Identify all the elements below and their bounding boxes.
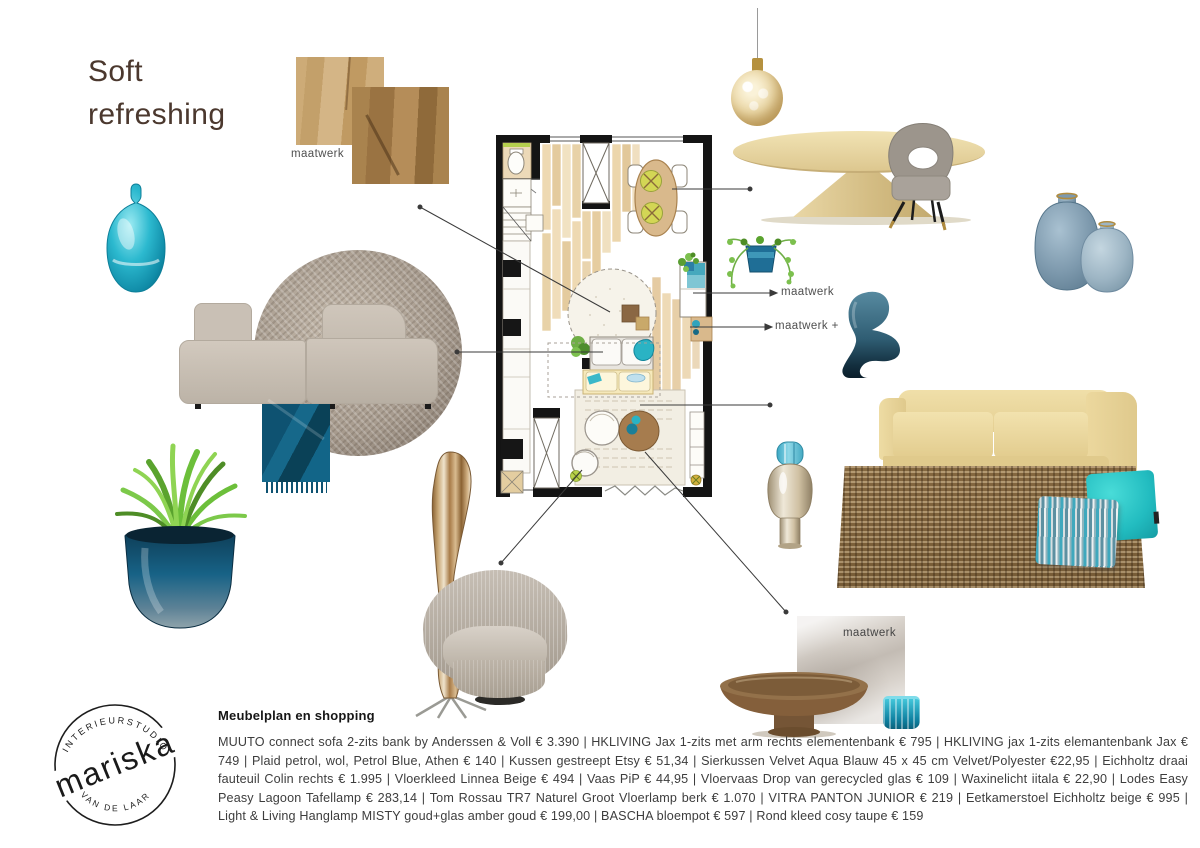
swivel-armchair [417, 570, 573, 716]
floorplan-radiator [605, 486, 683, 495]
sofa-seat-right [306, 338, 438, 404]
floorplan-shelf [690, 412, 704, 478]
maatwerk-cabinet-label: maatwerk [781, 286, 834, 298]
fern-in-blue-pot [105, 436, 255, 632]
floorplan-sofa [548, 336, 660, 397]
page-title-line2: refreshing [88, 93, 225, 136]
floorplan [490, 129, 722, 501]
floorplan-flower [691, 475, 701, 485]
beige-modular-sofa [177, 300, 439, 412]
maatwerk-wood-label: maatwerk [291, 148, 344, 160]
panton-silhouette [842, 292, 900, 378]
chair-front [453, 660, 545, 698]
dining-chair [876, 120, 968, 234]
striped-cushion [1035, 496, 1118, 568]
chair-legs [890, 200, 945, 230]
plant-pot [746, 246, 776, 272]
table-lamp [761, 438, 819, 550]
amber-pendant-lamp [729, 8, 787, 134]
blue-vases [1030, 190, 1138, 298]
floorplan-dining [628, 160, 687, 236]
petrol-plaid-throw [262, 404, 330, 482]
page-title-line1: Soft [88, 50, 225, 93]
maatwerk-plus-label: maatwerk + [775, 320, 839, 332]
floorplan-stairs [503, 179, 543, 241]
pendant-cord [757, 8, 758, 60]
sofa-seat-left [179, 340, 306, 404]
teal-floor-vase [101, 182, 171, 294]
sofa-cushion [893, 412, 993, 458]
sofa-cushion [994, 412, 1088, 458]
cushion-tag [1153, 511, 1159, 523]
pendant-glass [731, 70, 783, 126]
pot-body [125, 530, 235, 628]
shopping-items: MUUTO connect sofa 2-zits bank by Anders… [218, 733, 1188, 826]
page-title: Soft refreshing [88, 50, 225, 136]
floorplan-kitchen [501, 241, 530, 493]
wood-sample-dark [352, 87, 449, 184]
studio-logo: mariska INTERIEURSTUDIO VAN DE LAAR [48, 698, 183, 833]
panton-chair [836, 290, 904, 380]
floorplan-closet [583, 143, 609, 203]
floorplan-door [534, 418, 559, 488]
shopping-section: Meubelplan en shopping MUUTO connect sof… [218, 708, 1188, 826]
maatwerk-stone-label: maatwerk [843, 627, 896, 639]
fern-leaves [117, 446, 245, 532]
sofa-foot [195, 404, 201, 409]
shopping-heading: Meubelplan en shopping [218, 708, 1188, 723]
sofa-foot [425, 404, 431, 409]
